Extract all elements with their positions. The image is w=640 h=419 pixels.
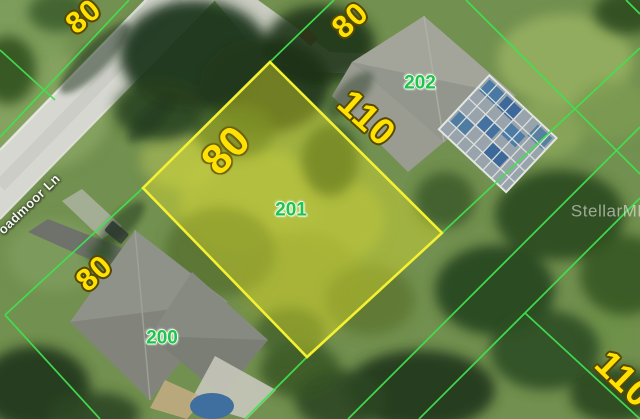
pool-200 — [190, 393, 234, 419]
aerial-photo-layer — [0, 0, 640, 419]
aerial-parcel-map: 80 80 110 80 80 110 202 201 200 oadmoor … — [0, 0, 640, 419]
parcel-number-200: 200 — [146, 329, 178, 348]
watermark-stellar-mls: StellarMLS — [571, 203, 640, 220]
parcel-number-201: 201 — [275, 201, 307, 220]
parcel-number-202: 202 — [404, 74, 436, 93]
